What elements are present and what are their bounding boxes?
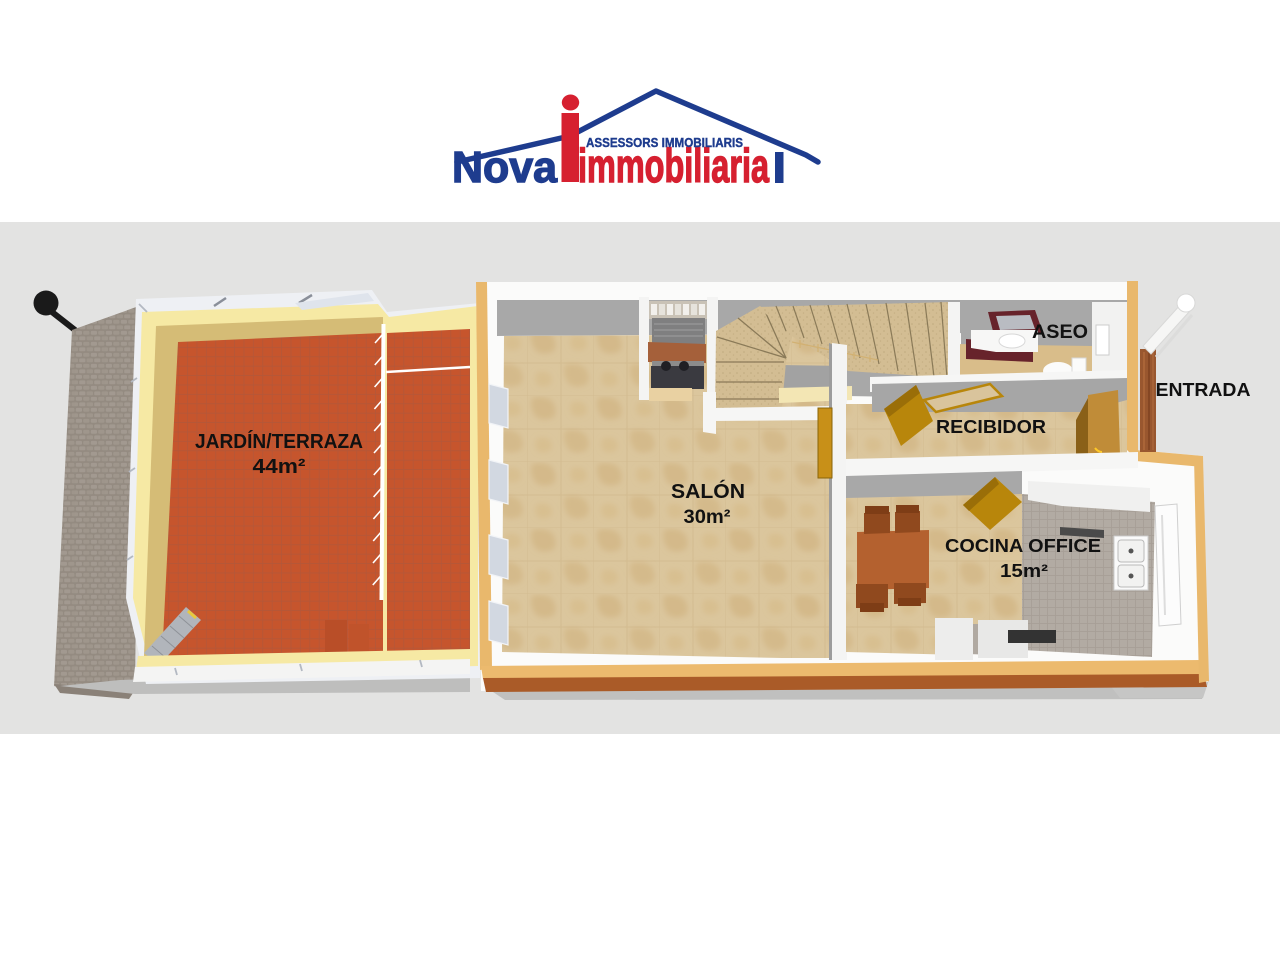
svg-text:ASEO: ASEO [1032, 322, 1088, 343]
svg-text:JARDÍN/TERRAZA: JARDÍN/TERRAZA [195, 430, 363, 453]
svg-text:COCINA OFFICE: COCINA OFFICE [945, 536, 1101, 556]
svg-text:30m²: 30m² [684, 507, 731, 528]
svg-text:ASSESSORS IMMOBILIARIS: ASSESSORS IMMOBILIARIS [586, 135, 743, 150]
svg-text:15m²: 15m² [1000, 561, 1048, 581]
svg-text:RECIBIDOR: RECIBIDOR [936, 417, 1046, 437]
svg-text:SALÓN: SALÓN [671, 479, 745, 503]
svg-text:ENTRADA: ENTRADA [1156, 380, 1251, 400]
svg-text:44m²: 44m² [253, 456, 306, 478]
svg-text:Nova: Nova [452, 143, 558, 192]
